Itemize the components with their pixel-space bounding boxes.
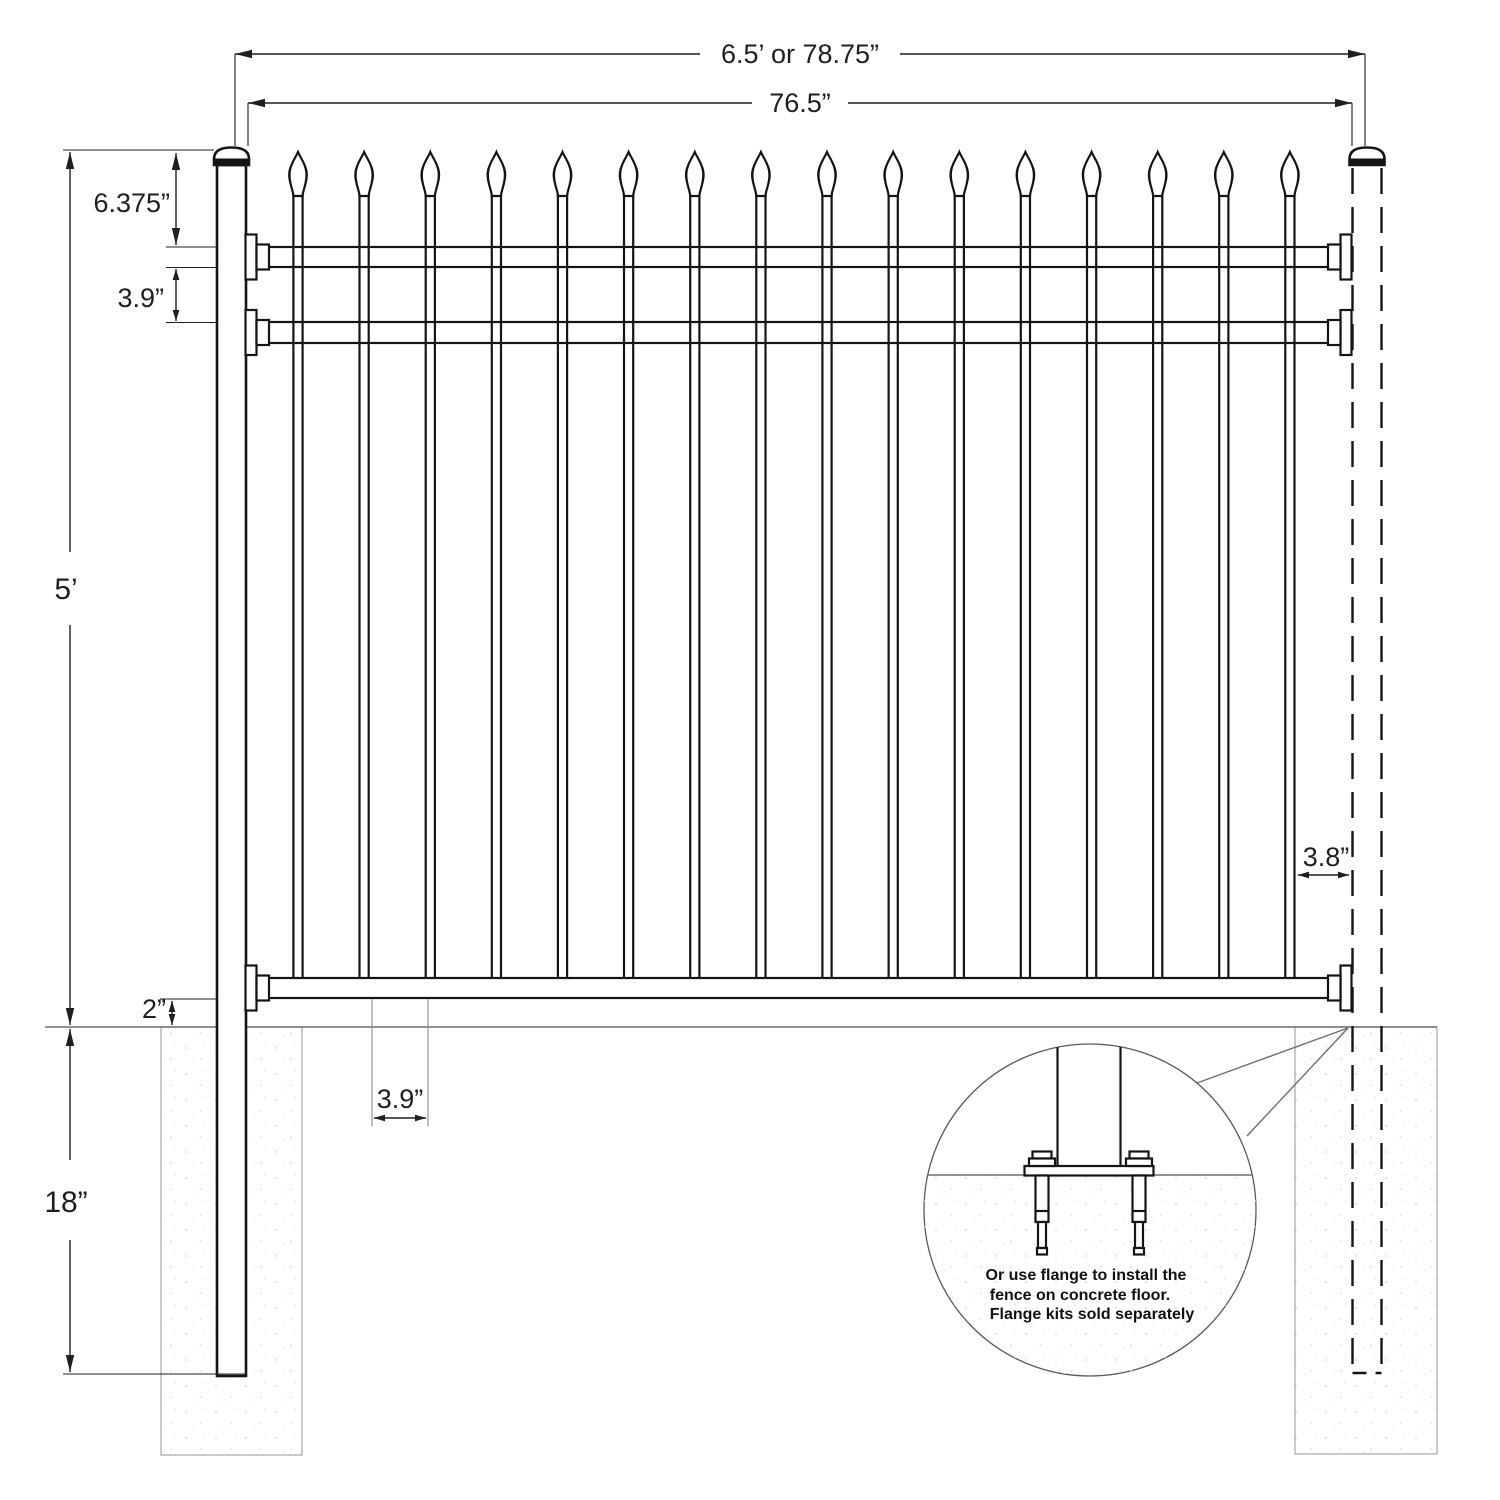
picket — [949, 152, 969, 980]
dim-label-top-offset: 6.375” — [93, 188, 170, 218]
flange-note: Or use flange to install the fence on co… — [986, 1267, 1195, 1323]
picket — [288, 152, 308, 980]
dim-end-gap: 3.8” — [1298, 842, 1349, 875]
picket — [883, 152, 903, 980]
dim-label-rail-spacing: 3.9” — [117, 283, 164, 313]
flange-note-line-3: Flange kits sold separately — [990, 1306, 1195, 1323]
dim-label-end-gap: 3.8” — [1303, 842, 1350, 872]
left-post-cap-band — [214, 159, 250, 166]
dim-picket-gap: 3.9” — [372, 999, 428, 1126]
bracket-left-top — [246, 235, 270, 280]
fence-diagram: 6.5’ or 78.75” 76.5” 5’ 6.375” 3.9” 2” — [0, 0, 1500, 1500]
picket — [817, 152, 837, 980]
fence-diagram-canvas: 6.5’ or 78.75” 76.5” 5’ 6.375” 3.9” 2” — [0, 0, 1500, 1500]
bracket-right-top — [1328, 235, 1352, 280]
picket — [619, 152, 639, 980]
flange-plate — [1025, 1166, 1154, 1176]
dim-rail-spacing: 3.9” — [117, 268, 218, 323]
flange-note-line-2: fence on concrete floor. — [990, 1287, 1170, 1304]
dim-ground-clearance: 2” — [142, 994, 217, 1025]
picket — [354, 152, 374, 980]
dim-label-ground-clearance: 2” — [142, 994, 166, 1024]
bracket-left-bottom — [246, 966, 270, 1011]
picket — [1214, 152, 1234, 980]
pickets — [288, 152, 1300, 980]
right-footing — [1295, 1027, 1437, 1454]
rails — [262, 247, 1338, 343]
flange-detail: Or use flange to install the fence on co… — [920, 1042, 1262, 1380]
flange-note-line-1: Or use flange to install the — [986, 1267, 1187, 1284]
top-rail — [262, 247, 1338, 267]
picket — [1280, 152, 1300, 980]
dim-label-picket-gap: 3.9” — [377, 1084, 424, 1114]
picket — [553, 152, 573, 980]
picket — [685, 152, 705, 980]
dim-label-fence-height: 5’ — [54, 573, 77, 606]
right-post-cap-band — [1349, 159, 1385, 166]
dim-label-underground-depth: 18” — [44, 1186, 87, 1219]
picket — [1082, 152, 1102, 980]
picket — [487, 152, 507, 980]
bracket-right-middle — [1328, 310, 1352, 355]
left-post — [214, 148, 250, 1377]
bracket-left-middle — [246, 310, 270, 355]
picket — [751, 152, 771, 980]
picket — [1016, 152, 1036, 980]
dim-label-total-width: 6.5’ or 78.75” — [721, 39, 879, 69]
middle-rail — [262, 322, 1338, 343]
bracket-right-bottom — [1328, 966, 1352, 1011]
dim-fence-height: 5’ — [54, 150, 214, 1025]
dim-top-offset: 6.375” — [93, 153, 218, 247]
dim-label-panel-width: 76.5” — [769, 88, 831, 118]
rail-brackets — [246, 235, 1352, 1011]
bottom-rail — [262, 978, 1338, 998]
picket — [420, 152, 440, 980]
picket — [1148, 152, 1168, 980]
dim-panel-width: 76.5” — [248, 88, 1352, 146]
